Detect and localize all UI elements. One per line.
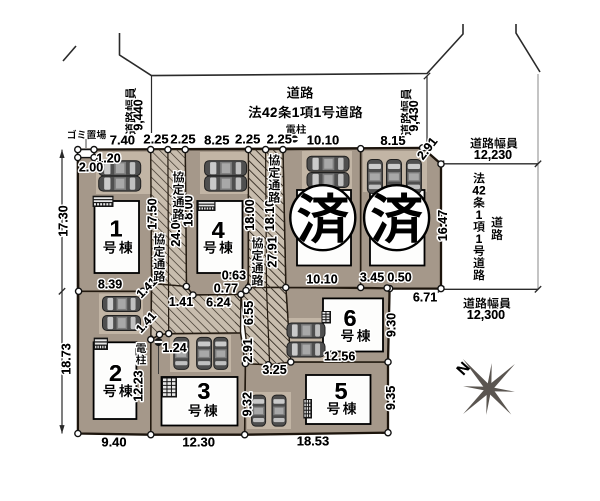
svg-text:0.77: 0.77 [214,282,238,296]
svg-text:2: 2 [270,105,278,120]
svg-text:1.24: 1.24 [162,341,186,355]
svg-text:2.25: 2.25 [143,132,168,147]
svg-text:4: 4 [212,217,225,243]
svg-text:10.10: 10.10 [307,133,340,148]
svg-text:18.53: 18.53 [297,434,330,449]
svg-text:1: 1 [109,216,122,242]
svg-text:12,230: 12,230 [474,148,512,162]
svg-text:27.91: 27.91 [266,236,280,267]
svg-text:1: 1 [314,105,322,120]
svg-text:1: 1 [476,208,483,222]
svg-text:17.50: 17.50 [146,198,160,229]
svg-text:1.41: 1.41 [169,295,193,309]
svg-text:12.56: 12.56 [324,350,355,364]
svg-text:2.25: 2.25 [267,132,292,147]
svg-text:4: 4 [262,105,270,120]
svg-text:3: 3 [197,378,210,404]
svg-text:2.25: 2.25 [170,132,195,147]
svg-text:6: 6 [343,305,356,331]
svg-text:42: 42 [472,184,486,198]
svg-text:6.55: 6.55 [242,301,256,325]
svg-text:2.25: 2.25 [235,132,260,147]
svg-text:2.00: 2.00 [79,161,103,175]
svg-text:3.45: 3.45 [360,271,384,285]
svg-text:8.25: 8.25 [204,133,229,148]
svg-text:12.30: 12.30 [182,435,215,450]
svg-text:18.73: 18.73 [60,343,74,374]
svg-text:12,300: 12,300 [467,308,505,322]
svg-text:1: 1 [476,232,483,246]
svg-text:9.30: 9.30 [385,313,399,337]
svg-text:6.24: 6.24 [206,296,230,310]
svg-text:6.71: 6.71 [413,291,437,305]
svg-text:5: 5 [334,378,347,404]
svg-text:8.39: 8.39 [98,278,122,292]
svg-text:0.63: 0.63 [222,269,246,283]
svg-text:17.30: 17.30 [57,205,71,236]
svg-text:16.47: 16.47 [436,210,450,241]
svg-text:10.10: 10.10 [306,273,337,287]
svg-text:2: 2 [109,360,122,386]
svg-text:3.25: 3.25 [262,363,286,377]
svg-text:9.35: 9.35 [384,386,398,410]
svg-text:0.50: 0.50 [387,271,411,285]
svg-text:9.32: 9.32 [240,392,254,416]
svg-text:9,440: 9,440 [132,99,146,130]
svg-text:18.00: 18.00 [243,199,257,230]
svg-text:1: 1 [292,105,300,120]
svg-text:9,430: 9,430 [407,100,421,131]
svg-text:9.40: 9.40 [101,435,126,450]
svg-text:2.91: 2.91 [241,338,255,362]
svg-text:18.10: 18.10 [263,200,277,231]
